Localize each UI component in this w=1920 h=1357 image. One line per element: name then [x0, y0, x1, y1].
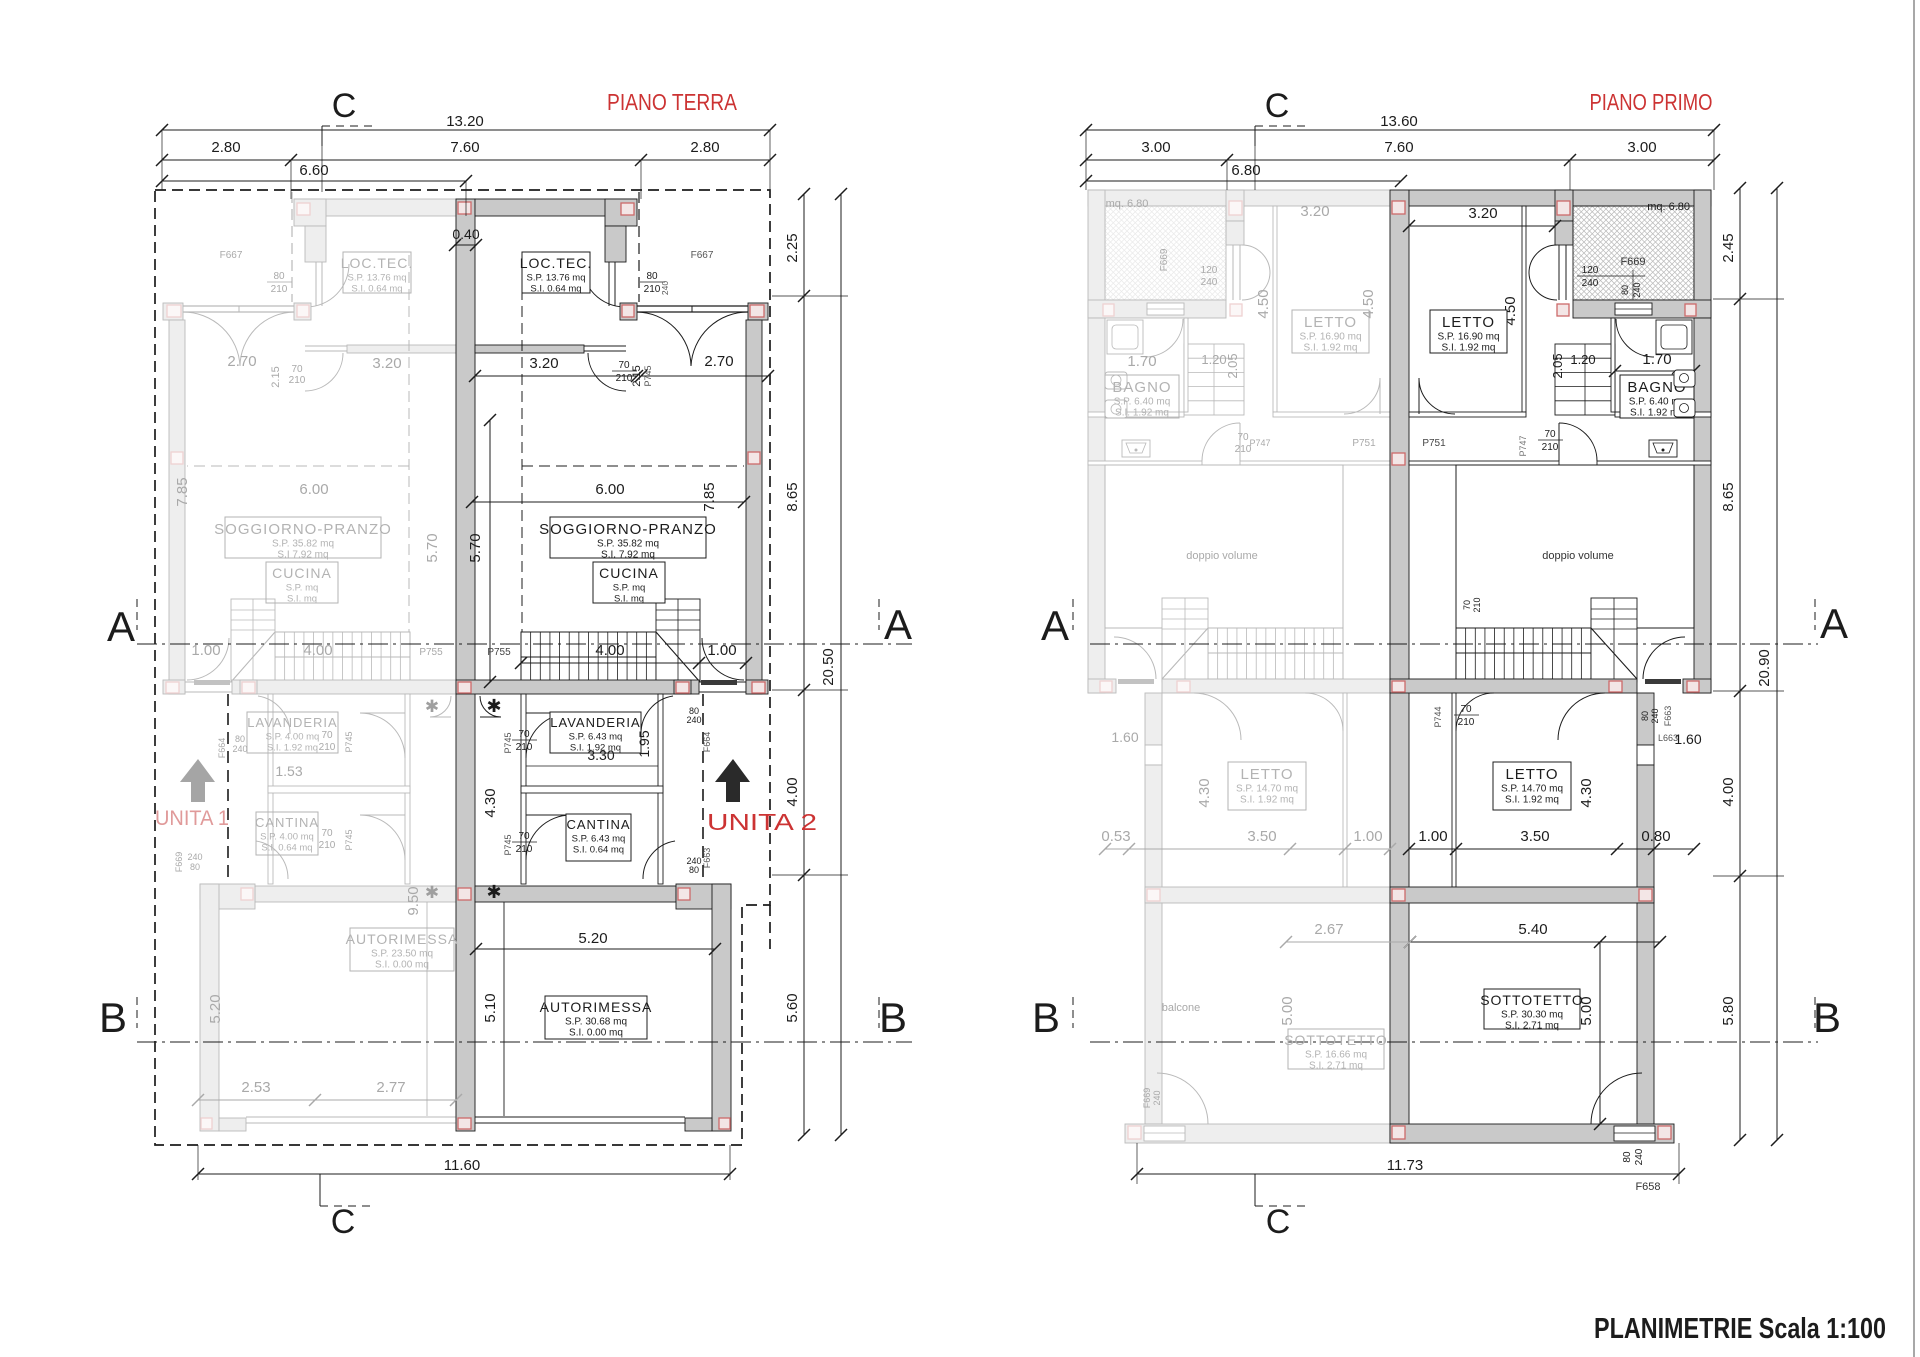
svg-text:5.80: 5.80: [1720, 996, 1737, 1025]
svg-text:S.P. 16.90 mq: S.P. 16.90 mq: [1437, 332, 1499, 343]
svg-text:7.85: 7.85: [701, 482, 718, 511]
svg-text:210: 210: [644, 284, 661, 295]
svg-text:1.00: 1.00: [1353, 828, 1382, 845]
svg-text:2.70: 2.70: [704, 353, 733, 370]
svg-text:4.00: 4.00: [1720, 777, 1737, 806]
svg-text:8.65: 8.65: [784, 482, 801, 511]
svg-text:0.40: 0.40: [452, 226, 479, 242]
svg-text:5.10: 5.10: [482, 993, 499, 1022]
svg-text:LETTO: LETTO: [1304, 314, 1357, 331]
svg-text:3.30: 3.30: [587, 747, 614, 763]
svg-text:70: 70: [618, 360, 630, 371]
svg-text:240: 240: [1650, 708, 1660, 723]
svg-text:C: C: [332, 87, 357, 125]
svg-text:9.50: 9.50: [405, 886, 422, 915]
svg-text:6.60: 6.60: [299, 162, 328, 179]
svg-text:5.20: 5.20: [578, 930, 607, 947]
svg-text:4.00: 4.00: [303, 642, 332, 659]
svg-text:S.I. mq: S.I. mq: [614, 594, 644, 605]
svg-text:210: 210: [1472, 597, 1482, 612]
svg-text:LAVANDERIA: LAVANDERIA: [550, 715, 640, 730]
svg-text:F669: F669: [1142, 1088, 1152, 1109]
svg-text:210: 210: [271, 284, 288, 295]
svg-text:SOGGIORNO-PRANZO: SOGGIORNO-PRANZO: [214, 521, 392, 538]
svg-text:P747: P747: [1249, 438, 1270, 448]
svg-text:4.30: 4.30: [1578, 778, 1595, 807]
svg-text:S.I. 0.64 mq: S.I. 0.64 mq: [530, 284, 581, 295]
svg-text:S.I. 1.92 mq: S.I. 1.92 mq: [1304, 343, 1358, 354]
svg-text:2.70: 2.70: [227, 353, 256, 370]
svg-text:240: 240: [232, 744, 247, 754]
svg-text:S.P. mq: S.P. mq: [286, 583, 319, 594]
svg-text:3.50: 3.50: [1520, 828, 1549, 845]
svg-text:S.P. 6.40 mq: S.P. 6.40 mq: [1114, 397, 1171, 408]
svg-text:A: A: [1041, 602, 1069, 649]
svg-text:80: 80: [646, 271, 658, 282]
svg-text:doppio volume: doppio volume: [1542, 550, 1614, 562]
svg-text:P755: P755: [419, 647, 443, 658]
svg-text:3.20: 3.20: [372, 355, 401, 372]
svg-text:240: 240: [187, 852, 202, 862]
svg-text:S.I. 2.71 mq: S.I. 2.71 mq: [1309, 1061, 1363, 1072]
svg-text:F667: F667: [220, 250, 243, 261]
svg-text:80: 80: [689, 865, 699, 875]
svg-text:C: C: [331, 1203, 356, 1241]
svg-text:4.30: 4.30: [1196, 778, 1213, 807]
svg-text:S.I. 0.64 mq: S.I. 0.64 mq: [351, 284, 402, 295]
svg-text:210: 210: [516, 844, 533, 855]
svg-text:S.P. 35.82 mq: S.P. 35.82 mq: [597, 539, 659, 550]
svg-text:11.73: 11.73: [1387, 1157, 1423, 1174]
svg-text:B: B: [1813, 994, 1841, 1041]
svg-text:80: 80: [1620, 285, 1630, 295]
svg-text:4.50: 4.50: [1255, 289, 1272, 318]
svg-text:mq. 6.80: mq. 6.80: [1106, 198, 1149, 210]
svg-text:2.77: 2.77: [376, 1079, 405, 1096]
svg-text:80: 80: [235, 734, 245, 744]
svg-text:70: 70: [1237, 432, 1249, 443]
svg-text:1.60: 1.60: [1674, 731, 1701, 747]
svg-text:4.00: 4.00: [595, 642, 624, 659]
svg-text:240: 240: [686, 715, 701, 725]
svg-text:C: C: [1265, 87, 1290, 125]
svg-text:80: 80: [273, 271, 285, 282]
svg-text:2.25: 2.25: [784, 233, 801, 262]
svg-text:S.P. 16.90 mq: S.P. 16.90 mq: [1299, 332, 1361, 343]
svg-text:2.53: 2.53: [241, 1079, 270, 1096]
svg-text:A: A: [884, 601, 912, 648]
svg-text:BAGNO: BAGNO: [1112, 379, 1171, 396]
svg-text:F664: F664: [217, 738, 227, 759]
svg-text:3.20: 3.20: [1468, 205, 1497, 222]
svg-text:5.00: 5.00: [1279, 996, 1296, 1025]
svg-text:LAVANDERIA: LAVANDERIA: [247, 715, 337, 730]
svg-text:✱: ✱: [425, 697, 439, 716]
svg-text:210: 210: [319, 742, 336, 753]
svg-text:210: 210: [289, 375, 306, 386]
svg-text:SOTTOTETTO: SOTTOTETTO: [1480, 992, 1584, 1008]
svg-text:A: A: [107, 603, 135, 650]
svg-text:CUCINA: CUCINA: [599, 565, 659, 581]
svg-text:1.70: 1.70: [1642, 351, 1671, 368]
svg-text:1.60: 1.60: [1111, 729, 1138, 745]
svg-text:A: A: [1820, 600, 1848, 647]
svg-text:doppio volume: doppio volume: [1186, 550, 1258, 562]
svg-text:6.80: 6.80: [1231, 162, 1260, 179]
svg-text:1.00: 1.00: [1418, 828, 1447, 845]
svg-text:2.67: 2.67: [1314, 921, 1343, 938]
svg-text:3.20: 3.20: [529, 355, 558, 372]
svg-text:240: 240: [1634, 1148, 1645, 1165]
svg-text:LETTO: LETTO: [1240, 766, 1293, 783]
svg-text:F669: F669: [174, 852, 184, 873]
svg-text:S.P. 14.70 mq: S.P. 14.70 mq: [1501, 784, 1563, 795]
svg-text:1.20: 1.20: [1201, 352, 1226, 367]
svg-text:F669: F669: [1620, 256, 1645, 268]
svg-text:2.05: 2.05: [1550, 353, 1565, 378]
svg-text:S.I. 0.00 mq: S.I. 0.00 mq: [375, 960, 429, 971]
svg-text:PIANO TERRA: PIANO TERRA: [607, 89, 738, 115]
svg-text:AUTORIMESSA: AUTORIMESSA: [540, 999, 653, 1015]
svg-text:240: 240: [1152, 1090, 1162, 1105]
svg-text:240: 240: [660, 281, 670, 295]
svg-text:✱: ✱: [486, 882, 501, 902]
svg-text:5.20: 5.20: [207, 994, 224, 1023]
svg-text:0.53: 0.53: [1101, 828, 1130, 845]
svg-text:F658: F658: [1635, 1181, 1660, 1193]
svg-text:70: 70: [321, 730, 333, 741]
svg-text:✱: ✱: [425, 883, 439, 902]
svg-text:UNITA 2: UNITA 2: [707, 809, 817, 835]
svg-text:7.85: 7.85: [174, 477, 191, 506]
svg-text:UNITA 1: UNITA 1: [155, 807, 229, 830]
svg-text:C: C: [1266, 1203, 1291, 1241]
svg-text:240: 240: [1201, 277, 1218, 288]
svg-text:P747: P747: [1518, 435, 1528, 456]
svg-text:P751: P751: [1352, 438, 1376, 449]
svg-text:210: 210: [516, 742, 533, 753]
svg-text:5.70: 5.70: [467, 533, 484, 562]
svg-text:F669: F669: [1159, 248, 1170, 271]
svg-text:1.00: 1.00: [191, 642, 220, 659]
svg-text:P745: P745: [503, 732, 513, 753]
svg-text:S.P. 4.00 mq: S.P. 4.00 mq: [266, 732, 320, 743]
svg-text:70: 70: [518, 831, 530, 842]
svg-text:S.P. 30.68 mq: S.P. 30.68 mq: [565, 1017, 627, 1028]
svg-text:mq. 6.80: mq. 6.80: [1647, 201, 1690, 213]
svg-text:S.I. 1.92 mq: S.I. 1.92 mq: [1115, 408, 1169, 419]
svg-text:S.P. 23.50 mq: S.P. 23.50 mq: [371, 949, 433, 960]
svg-text:F663: F663: [1663, 706, 1673, 727]
svg-text:F664: F664: [702, 732, 712, 753]
svg-text:11.60: 11.60: [444, 1157, 480, 1174]
svg-text:7.60: 7.60: [450, 139, 479, 156]
svg-text:S.P. 14.70 mq: S.P. 14.70 mq: [1236, 784, 1298, 795]
svg-text:1.53: 1.53: [275, 763, 302, 779]
svg-text:P745: P745: [643, 365, 653, 386]
svg-text:5.60: 5.60: [784, 993, 801, 1022]
svg-text:20.90: 20.90: [1756, 649, 1773, 687]
svg-text:80: 80: [190, 862, 200, 872]
svg-text:2.80: 2.80: [211, 139, 240, 156]
svg-text:240: 240: [1582, 278, 1599, 289]
svg-text:✱: ✱: [486, 696, 501, 716]
svg-text:2.80: 2.80: [690, 139, 719, 156]
svg-text:CANTINA: CANTINA: [566, 817, 630, 832]
svg-text:PIANO PRIMO: PIANO PRIMO: [1590, 89, 1713, 115]
svg-text:B: B: [1032, 994, 1060, 1041]
svg-text:1.20: 1.20: [1570, 352, 1595, 367]
svg-text:S.P. 6.43 mq: S.P. 6.43 mq: [572, 834, 626, 845]
svg-text:120: 120: [1582, 265, 1599, 276]
svg-text:70: 70: [321, 828, 333, 839]
svg-text:2.45: 2.45: [1720, 233, 1737, 262]
svg-text:6.00: 6.00: [299, 481, 328, 498]
svg-text:S.I. 1.92 mq: S.I. 1.92 mq: [267, 743, 318, 754]
svg-text:4.00: 4.00: [784, 777, 801, 806]
svg-text:2.15: 2.15: [270, 366, 282, 387]
svg-text:13.60: 13.60: [1380, 113, 1418, 130]
svg-text:80: 80: [1640, 711, 1650, 721]
svg-text:S.I. 2.71 mq: S.I. 2.71 mq: [1505, 1021, 1559, 1032]
svg-text:P751: P751: [1422, 438, 1446, 449]
svg-text:P745: P745: [344, 731, 354, 752]
svg-text:S.I 7.92 mq: S.I 7.92 mq: [277, 550, 328, 561]
svg-text:AUTORIMESSA: AUTORIMESSA: [346, 931, 459, 947]
svg-text:3.00: 3.00: [1141, 139, 1170, 156]
svg-text:LETTO: LETTO: [1442, 314, 1495, 331]
svg-text:S.P. 35.82 mq: S.P. 35.82 mq: [272, 539, 334, 550]
svg-text:S.P. 6.43 mq: S.P. 6.43 mq: [569, 732, 623, 743]
svg-text:3.00: 3.00: [1627, 139, 1656, 156]
svg-text:2.15: 2.15: [631, 365, 643, 386]
svg-text:S.I. 1.92 mq: S.I. 1.92 mq: [1240, 795, 1294, 806]
svg-text:S.I. 0.64 mq: S.I. 0.64 mq: [573, 845, 624, 856]
svg-text:70: 70: [1462, 600, 1472, 610]
svg-text:5.70: 5.70: [424, 533, 441, 562]
svg-text:LOC.TEC.: LOC.TEC.: [341, 255, 414, 271]
svg-text:7.60: 7.60: [1384, 139, 1413, 156]
svg-text:2.05: 2.05: [1225, 353, 1240, 378]
svg-text:P745: P745: [344, 829, 354, 850]
svg-text:240: 240: [1632, 282, 1642, 297]
svg-text:B: B: [99, 994, 127, 1041]
svg-text:S.I. 1.92 mq: S.I. 1.92 mq: [1505, 795, 1559, 806]
svg-text:balcone: balcone: [1162, 1002, 1201, 1014]
svg-text:70: 70: [1544, 429, 1556, 440]
svg-text:3.20: 3.20: [1300, 203, 1329, 220]
svg-text:S.P. 13.76 mq: S.P. 13.76 mq: [527, 273, 586, 284]
svg-text:P744: P744: [1433, 706, 1443, 727]
svg-text:F663: F663: [702, 848, 712, 869]
svg-text:SOGGIORNO-PRANZO: SOGGIORNO-PRANZO: [539, 521, 717, 538]
svg-text:8.65: 8.65: [1720, 482, 1737, 511]
svg-text:1.70: 1.70: [1127, 353, 1156, 370]
svg-text:S.I. 0.64 mq: S.I. 0.64 mq: [261, 843, 312, 854]
svg-text:P745: P745: [503, 834, 513, 855]
svg-text:20.50: 20.50: [820, 648, 837, 686]
svg-text:CUCINA: CUCINA: [272, 565, 332, 581]
svg-text:CANTINA: CANTINA: [255, 815, 319, 830]
svg-text:210: 210: [1458, 717, 1475, 728]
svg-text:PLANIMETRIE Scala 1:100: PLANIMETRIE Scala 1:100: [1594, 1313, 1886, 1345]
svg-text:LOC.TEC.: LOC.TEC.: [520, 255, 593, 271]
svg-text:3.50: 3.50: [1247, 828, 1276, 845]
svg-text:13.20: 13.20: [446, 113, 484, 130]
svg-text:S.I. 0.00 mq: S.I. 0.00 mq: [569, 1028, 623, 1039]
svg-text:120: 120: [1201, 265, 1218, 276]
svg-text:S.P. 16.66 mq: S.P. 16.66 mq: [1305, 1050, 1367, 1061]
svg-text:S.I. 1.92 mq: S.I. 1.92 mq: [1442, 343, 1496, 354]
svg-text:70: 70: [518, 729, 530, 740]
svg-text:1.95: 1.95: [636, 730, 652, 757]
svg-text:80: 80: [1622, 1151, 1633, 1163]
svg-text:S.P. 30.30 mq: S.P. 30.30 mq: [1501, 1010, 1563, 1021]
svg-text:P755: P755: [487, 647, 511, 658]
svg-text:70: 70: [291, 364, 303, 375]
svg-text:4.30: 4.30: [482, 788, 499, 817]
svg-text:F667: F667: [691, 250, 714, 261]
svg-text:S.P. mq: S.P. mq: [613, 583, 646, 594]
svg-text:5.00: 5.00: [1578, 996, 1595, 1025]
svg-text:210: 210: [319, 840, 336, 851]
svg-text:SOTTOTETTO: SOTTOTETTO: [1284, 1032, 1388, 1048]
svg-text:S.I. mq: S.I. mq: [287, 594, 317, 605]
svg-text:1.00: 1.00: [707, 642, 736, 659]
svg-text:0.80: 0.80: [1641, 828, 1670, 845]
svg-text:S.I. 7.92 mq: S.I. 7.92 mq: [601, 550, 655, 561]
svg-text:LETTO: LETTO: [1505, 766, 1558, 783]
svg-text:B: B: [879, 994, 907, 1041]
svg-text:S.P. 13.76 mq: S.P. 13.76 mq: [348, 273, 407, 284]
svg-text:5.40: 5.40: [1518, 921, 1547, 938]
svg-text:6.00: 6.00: [595, 481, 624, 498]
svg-text:70: 70: [1460, 704, 1472, 715]
svg-text:210: 210: [1542, 442, 1559, 453]
svg-text:S.P. 4.00 mq: S.P. 4.00 mq: [260, 832, 314, 843]
